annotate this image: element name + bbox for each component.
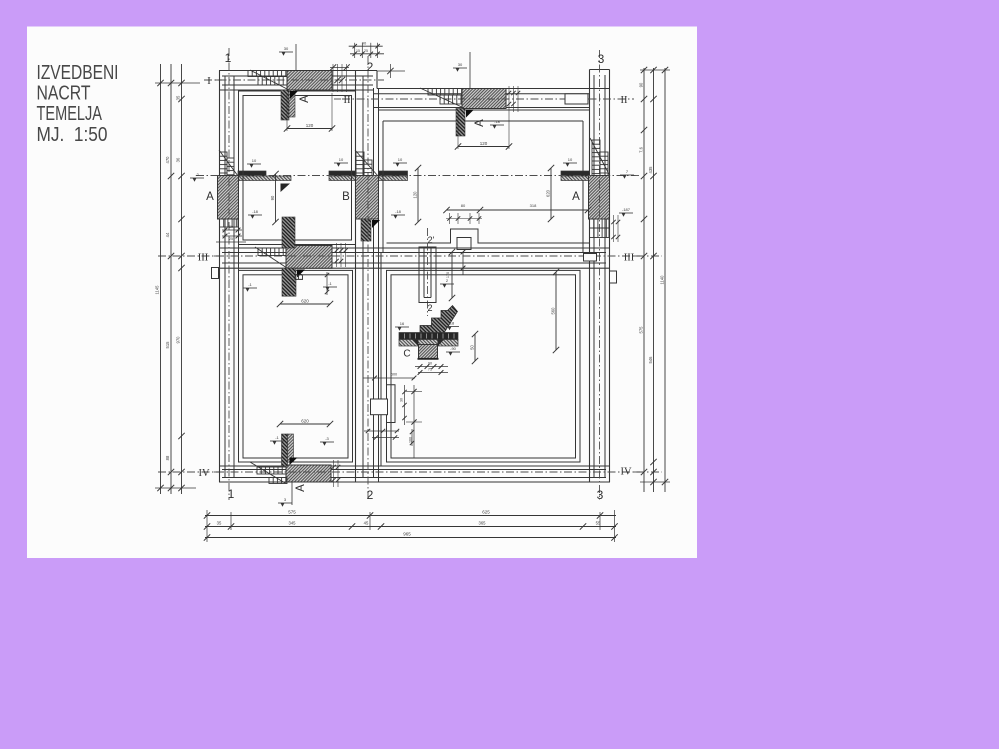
svg-text:500: 500 — [391, 373, 397, 377]
svg-text:36: 36 — [176, 157, 181, 162]
svg-text:625: 625 — [482, 510, 490, 515]
svg-text:-18: -18 — [252, 209, 259, 214]
svg-text:90: 90 — [639, 82, 644, 87]
svg-text:TEMELJA: TEMELJA — [37, 103, 103, 125]
svg-text:IV: IV — [198, 468, 209, 479]
svg-text:345: 345 — [289, 521, 297, 526]
svg-text:970: 970 — [176, 336, 181, 344]
svg-text:IV: IV — [620, 467, 631, 478]
svg-text:10: 10 — [398, 157, 403, 162]
svg-text:35: 35 — [217, 521, 222, 526]
svg-text:B: B — [342, 191, 350, 203]
svg-text:575: 575 — [639, 326, 644, 334]
svg-text:120: 120 — [306, 123, 314, 128]
svg-text:30: 30 — [458, 62, 463, 67]
svg-text:90: 90 — [362, 41, 367, 46]
svg-text:NACRT: NACRT — [37, 83, 91, 105]
svg-text:90: 90 — [428, 362, 432, 366]
svg-text:75: 75 — [428, 368, 432, 372]
svg-text:2': 2' — [428, 235, 435, 245]
svg-text:1145: 1145 — [155, 285, 160, 295]
svg-text:35: 35 — [176, 95, 181, 100]
svg-text:620: 620 — [301, 299, 309, 304]
svg-text:435: 435 — [648, 166, 653, 174]
svg-text:10: 10 — [568, 157, 573, 162]
svg-text:MJ. 1:50: MJ. 1:50 — [37, 124, 108, 146]
svg-text:B: B — [294, 273, 306, 281]
svg-text:16: 16 — [400, 321, 405, 326]
svg-text:II: II — [344, 95, 351, 106]
svg-text:50: 50 — [470, 345, 475, 350]
svg-text:3: 3 — [598, 52, 605, 66]
svg-text:170: 170 — [446, 272, 450, 278]
svg-text:2: 2 — [367, 60, 374, 74]
svg-text:-90: -90 — [450, 346, 457, 351]
svg-text:10: 10 — [252, 158, 257, 163]
svg-text:1140: 1140 — [660, 275, 665, 285]
svg-text:45: 45 — [364, 521, 369, 526]
svg-text:120: 120 — [480, 141, 488, 146]
svg-text:A: A — [474, 119, 486, 127]
svg-text:I: I — [207, 76, 211, 87]
svg-text:470: 470 — [165, 156, 170, 164]
svg-text:30: 30 — [400, 398, 404, 402]
svg-text:A: A — [572, 191, 580, 203]
svg-text:90: 90 — [270, 195, 275, 200]
svg-text:620: 620 — [546, 189, 551, 197]
svg-text:-18: -18 — [395, 209, 402, 214]
svg-text:44: 44 — [165, 232, 170, 237]
svg-text:515: 515 — [165, 341, 170, 349]
svg-text:120: 120 — [413, 191, 418, 199]
svg-text:A: A — [295, 484, 307, 492]
svg-text:II: II — [621, 95, 628, 106]
svg-text:A: A — [206, 191, 214, 203]
svg-text:IZVEDBENI: IZVEDBENI — [37, 62, 119, 84]
svg-text:546: 546 — [648, 356, 653, 364]
svg-text:III: III — [198, 253, 209, 264]
svg-text:965: 965 — [403, 532, 411, 537]
svg-text:620: 620 — [301, 419, 309, 424]
svg-text:1: 1 — [228, 487, 235, 501]
svg-text:25: 25 — [364, 49, 368, 53]
svg-text:-187: -187 — [622, 207, 631, 212]
svg-text:III: III — [624, 253, 635, 264]
svg-text:2: 2 — [427, 303, 432, 313]
svg-text:318: 318 — [530, 203, 537, 208]
svg-text:365: 365 — [479, 521, 487, 526]
svg-text:A: A — [299, 95, 311, 103]
svg-text:2: 2 — [367, 488, 374, 502]
svg-text:C: C — [403, 349, 410, 360]
svg-text:80: 80 — [461, 203, 466, 208]
svg-text:7,6: 7,6 — [639, 146, 644, 152]
svg-text:15: 15 — [356, 49, 360, 53]
svg-text:55: 55 — [596, 521, 601, 526]
svg-text:-18: -18 — [494, 119, 501, 124]
svg-text:18: 18 — [450, 321, 455, 326]
svg-text:575: 575 — [288, 510, 296, 515]
svg-text:25: 25 — [229, 237, 233, 241]
svg-text:30: 30 — [284, 46, 289, 51]
svg-text:560: 560 — [551, 307, 556, 315]
svg-text:88: 88 — [165, 455, 170, 460]
svg-text:10: 10 — [339, 157, 344, 162]
svg-text:60: 60 — [229, 225, 233, 229]
svg-text:3: 3 — [597, 488, 604, 502]
svg-text:1: 1 — [225, 51, 232, 65]
